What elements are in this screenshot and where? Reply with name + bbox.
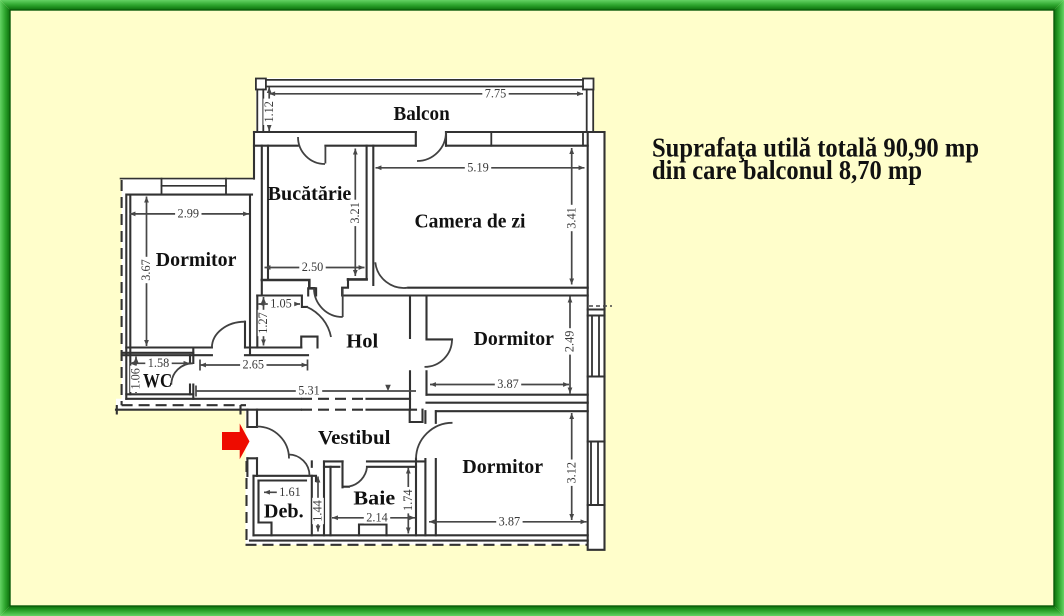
svg-text:3.67: 3.67	[138, 259, 153, 281]
svg-text:3.87: 3.87	[497, 376, 519, 391]
svg-text:1.27: 1.27	[255, 312, 270, 334]
svg-text:3.41: 3.41	[563, 207, 578, 229]
svg-text:Hol: Hol	[346, 331, 378, 353]
svg-text:Bucătărie: Bucătărie	[268, 183, 352, 205]
svg-text:3.12: 3.12	[563, 462, 578, 484]
svg-text:1.61: 1.61	[279, 484, 301, 499]
svg-text:Vestibul: Vestibul	[318, 427, 391, 449]
svg-text:Camera de zi: Camera de zi	[415, 211, 526, 233]
svg-text:3.87: 3.87	[499, 514, 521, 529]
svg-text:5.31: 5.31	[298, 383, 320, 398]
svg-text:1.74: 1.74	[400, 489, 415, 511]
svg-text:1.06: 1.06	[128, 368, 143, 390]
svg-text:1.05: 1.05	[270, 296, 292, 311]
svg-text:1.44: 1.44	[310, 500, 325, 522]
svg-text:Deb.: Deb.	[264, 501, 304, 523]
svg-text:Dormitor: Dormitor	[156, 249, 237, 271]
svg-text:7.75: 7.75	[485, 86, 507, 101]
svg-text:2.14: 2.14	[366, 510, 388, 525]
svg-text:Dormitor: Dormitor	[462, 456, 543, 478]
svg-text:2.49: 2.49	[562, 331, 577, 353]
svg-text:din care balconul 8,70 mp: din care balconul 8,70 mp	[652, 155, 922, 185]
svg-text:1.58: 1.58	[148, 355, 170, 370]
svg-text:Baie: Baie	[353, 487, 395, 509]
svg-text:2.65: 2.65	[243, 357, 265, 372]
svg-text:Balcon: Balcon	[393, 103, 449, 125]
svg-text:WC: WC	[143, 370, 172, 392]
svg-text:3.21: 3.21	[347, 202, 362, 224]
svg-text:2.50: 2.50	[302, 259, 324, 274]
svg-text:Dormitor: Dormitor	[474, 328, 555, 350]
svg-text:1.12: 1.12	[261, 101, 276, 123]
svg-text:2.99: 2.99	[178, 206, 200, 221]
svg-text:5.19: 5.19	[467, 160, 489, 175]
